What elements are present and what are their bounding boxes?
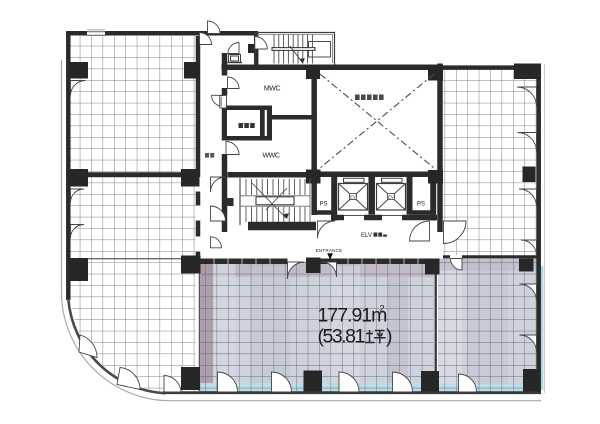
svg-text:WWC: WWC xyxy=(262,153,279,160)
svg-text:EV: EV xyxy=(350,195,356,200)
svg-text:EV: EV xyxy=(388,195,394,200)
svg-text:ENTRANCE: ENTRANCE xyxy=(316,248,343,253)
svg-text:ELV: ELV xyxy=(361,233,372,239)
svg-text:(53.81: (53.81 xyxy=(318,326,365,348)
svg-text:): ) xyxy=(386,326,393,348)
svg-text:MWC: MWC xyxy=(264,86,281,93)
svg-text:PS: PS xyxy=(417,202,425,208)
svg-text:PS: PS xyxy=(319,202,327,208)
svg-text:2: 2 xyxy=(380,304,385,314)
svg-text:177.91m: 177.91m xyxy=(318,305,387,327)
